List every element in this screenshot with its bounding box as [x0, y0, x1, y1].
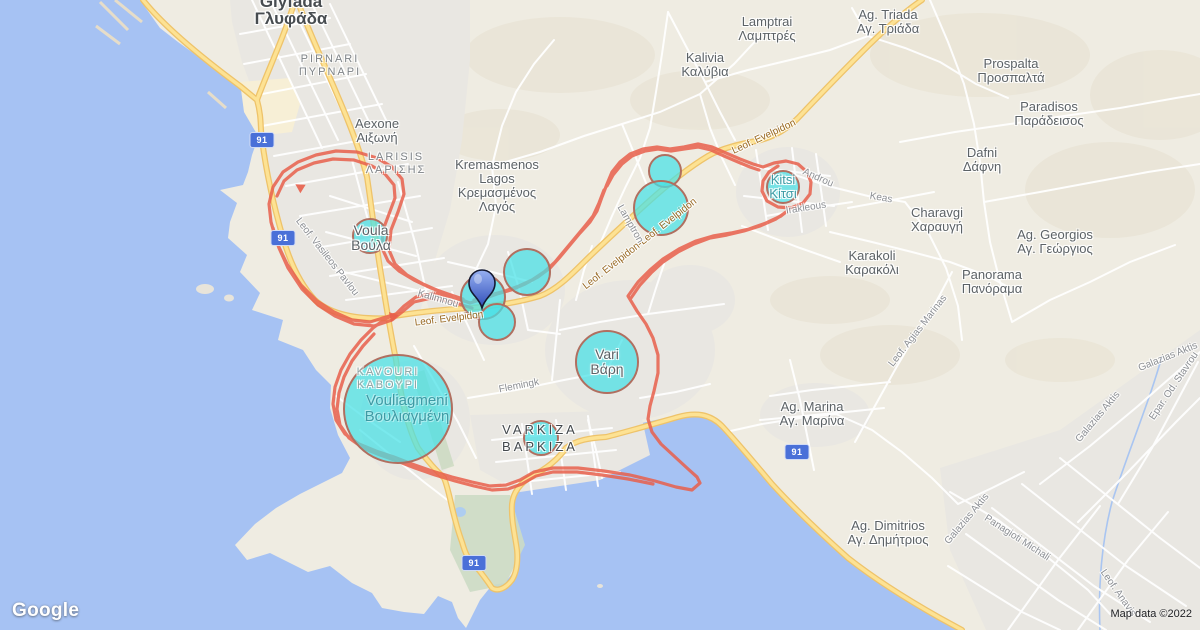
- heat-circle-voula: [353, 219, 387, 253]
- heat-circle-mid: [504, 249, 550, 295]
- google-logo[interactable]: Google: [12, 600, 79, 622]
- static-map[interactable]: GlyfadaΓλυφάδα AexoneΑιξωνή KremasmenosL…: [0, 0, 1200, 630]
- map-attribution: Map data ©2022: [1111, 608, 1193, 620]
- heat-circle-vari: [576, 331, 638, 393]
- heat-circle-varkiza: [524, 421, 558, 455]
- heat-circle-south-of-pin: [479, 304, 515, 340]
- map-canvas[interactable]: [0, 0, 1200, 630]
- heat-circle-kitsi: [767, 171, 799, 203]
- heat-circle-north-large: [634, 181, 688, 235]
- heat-circle-vouliagmeni: [344, 355, 452, 463]
